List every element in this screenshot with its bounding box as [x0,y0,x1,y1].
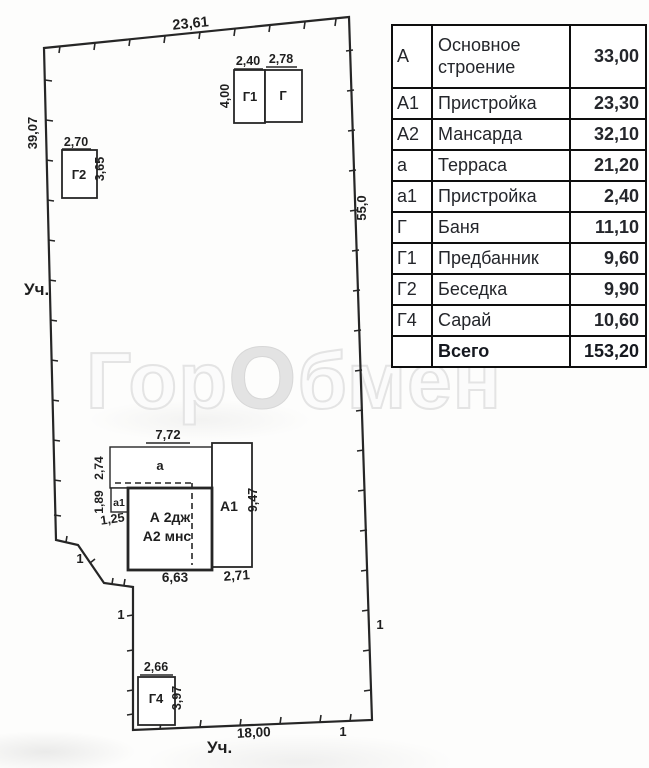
label-terrace: а [156,458,164,473]
building-code-cell: Г [392,212,432,243]
label-g1: Г1 [243,89,258,104]
fence-mark-2: 1 [117,607,124,622]
building-name-cell: Сарай [432,305,570,336]
building-area-cell: 9,90 [570,274,646,305]
building-areas-table: А Основное строение 33,00 А1 Пристройка … [391,24,647,368]
table-row-total: Всего 153,20 [392,336,646,367]
building-code-cell: а1 [392,181,432,212]
dim-house-bottom-main: 6,63 [162,570,189,585]
building-name-cell: Предбанник [432,243,570,274]
dim-g4-height: 3,97 [170,686,184,710]
site-plan-drawing: 2,40 2,78 4,00 Г1 Г 2,70 3,65 Г2 2,66 3,… [0,0,390,768]
label-annex-small: а1 [113,497,125,509]
building-code-cell: Г1 [392,243,432,274]
table-row: а Терраса 21,20 [392,150,646,181]
building-area-cell: 33,00 [570,25,646,88]
building-area-cell: 9,60 [570,243,646,274]
fence-mark-4: 1 [339,724,346,739]
dim-house-left-lower: 1,89 [92,490,106,514]
dim-g-width: 2,78 [269,52,293,66]
table-row: а1 Пристройка 2,40 [392,181,646,212]
plot-boundary [44,17,372,730]
building-name-cell: Основное строение [432,25,570,88]
table-row: Г4 Сарай 10,60 [392,305,646,336]
scanned-site-plan-page: ГорОбмен 2,40 2,78 4,00 Г1 Г 2,70 3,65 Г… [0,0,649,768]
building-area-cell: 32,10 [570,119,646,150]
table-row: Г1 Предбанник 9,60 [392,243,646,274]
label-g: Г [279,88,287,103]
dim-g1-width: 2,40 [236,54,260,68]
building-code-cell: А [392,25,432,88]
table-row: Г2 Беседка 9,90 [392,274,646,305]
table-row: А1 Пристройка 23,30 [392,88,646,119]
fence-mark-3: 1 [376,617,383,632]
dim-boundary-right: 55,0 [354,195,369,220]
dim-g2-height: 3,65 [93,157,107,181]
building-name-cell: Пристройка [432,88,570,119]
dim-house-top: 7,72 [155,427,180,442]
building-name-cell: Мансарда [432,119,570,150]
label-annex-big: А1 [220,498,238,514]
label-main-house-line1: А 2дж [150,509,192,525]
building-name-cell: Пристройка [432,181,570,212]
dim-annex-small: 1,25 [99,510,125,527]
dim-bath-height: 4,00 [218,84,232,108]
building-area-cell: 10,60 [570,305,646,336]
dim-boundary-bottom: 18,00 [236,724,271,741]
building-code-cell: Г4 [392,305,432,336]
label-g2: Г2 [72,167,87,182]
table-row: А2 Мансарда 32,10 [392,119,646,150]
building-area-cell: 2,40 [570,181,646,212]
dim-house-left-upper: 2,74 [92,456,106,480]
building-code-cell: а [392,150,432,181]
table-row: Г Баня 11,10 [392,212,646,243]
building-code-cell: А1 [392,88,432,119]
building-code-cell: Г2 [392,274,432,305]
dim-g4-width: 2,66 [144,660,168,674]
dim-house-bottom-annex: 2,71 [223,567,251,584]
table-row: А Основное строение 33,00 [392,25,646,88]
building-code-cell [392,336,432,367]
building-name-cell: Баня [432,212,570,243]
building-areas-table-wrap: А Основное строение 33,00 А1 Пристройка … [391,24,647,368]
plot-label-bottom: Уч. [207,738,232,757]
fence-mark-1: 1 [76,551,83,566]
building-area-cell: 23,30 [570,88,646,119]
total-label-cell: Всего [432,336,570,367]
label-g4: Г4 [149,691,164,706]
plot-label-left: Уч. [24,280,49,299]
building-name-cell: Терраса [432,150,570,181]
dim-g2-width: 2,70 [64,135,88,149]
building-area-cell: 21,20 [570,150,646,181]
building-area-cell: 11,10 [570,212,646,243]
dim-annex-big-right: 9,47 [246,488,260,512]
label-main-house-line2: А2 мнс [143,528,192,544]
dim-boundary-left: 39,07 [25,117,40,150]
total-area-cell: 153,20 [570,336,646,367]
building-name-cell: Беседка [432,274,570,305]
building-code-cell: А2 [392,119,432,150]
